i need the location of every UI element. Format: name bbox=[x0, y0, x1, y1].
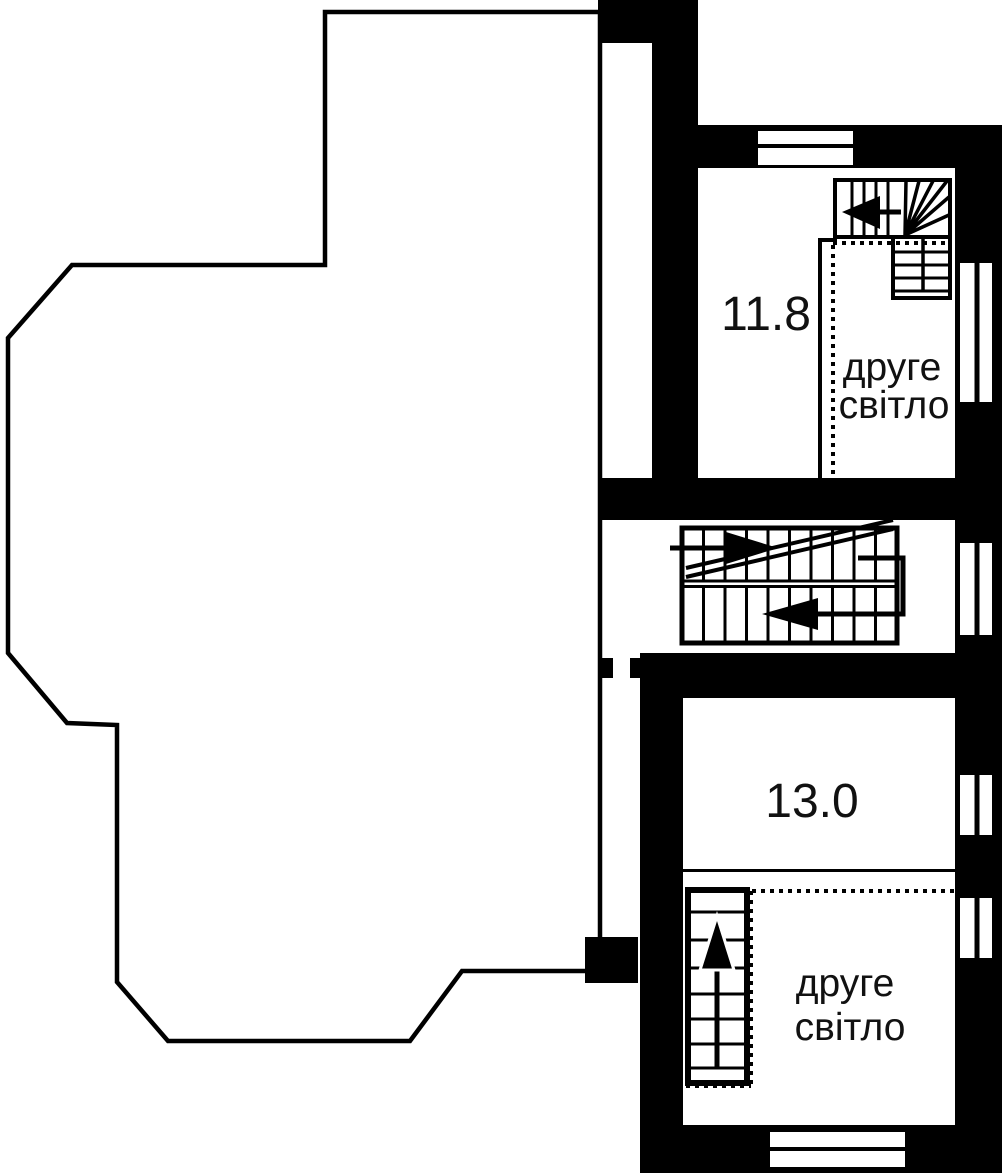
lower-void-label-line2: світло bbox=[795, 1006, 906, 1049]
floor-plan: 11.8 13.0 друге світло друге світло bbox=[0, 0, 1002, 1173]
wall-between-stairhall-and-lower-room bbox=[642, 653, 1002, 698]
lower-room-void-divider bbox=[683, 869, 955, 872]
upper-void-left-border bbox=[818, 238, 822, 478]
window-stairhall-right bbox=[960, 543, 992, 635]
upper-room-area-label: 11.8 bbox=[721, 288, 811, 341]
wall-lower-left-vertical bbox=[640, 653, 683, 1173]
floor-plan-canvas: 11.8 13.0 друге світло друге світло bbox=[0, 0, 1002, 1173]
lower-void-label-line1: друге bbox=[796, 962, 895, 1005]
window-bottom-wall bbox=[770, 1132, 905, 1167]
wall-upper-left-vertical bbox=[652, 0, 698, 478]
lower-room-area-label: 13.0 bbox=[765, 775, 858, 828]
window-upper-room-right bbox=[960, 263, 992, 402]
door-jamb-left bbox=[600, 658, 613, 678]
window-lower-void-right bbox=[960, 898, 992, 958]
wall-connector-stub bbox=[585, 937, 638, 983]
window-top-wall bbox=[758, 131, 853, 165]
wall-between-room-and-stairhall bbox=[600, 478, 1002, 520]
upper-void-label-line1: друге bbox=[843, 346, 942, 389]
window-lower-room-right bbox=[960, 775, 992, 835]
upper-void-label-line2: світло bbox=[839, 384, 950, 427]
door-jamb-right bbox=[630, 658, 643, 678]
